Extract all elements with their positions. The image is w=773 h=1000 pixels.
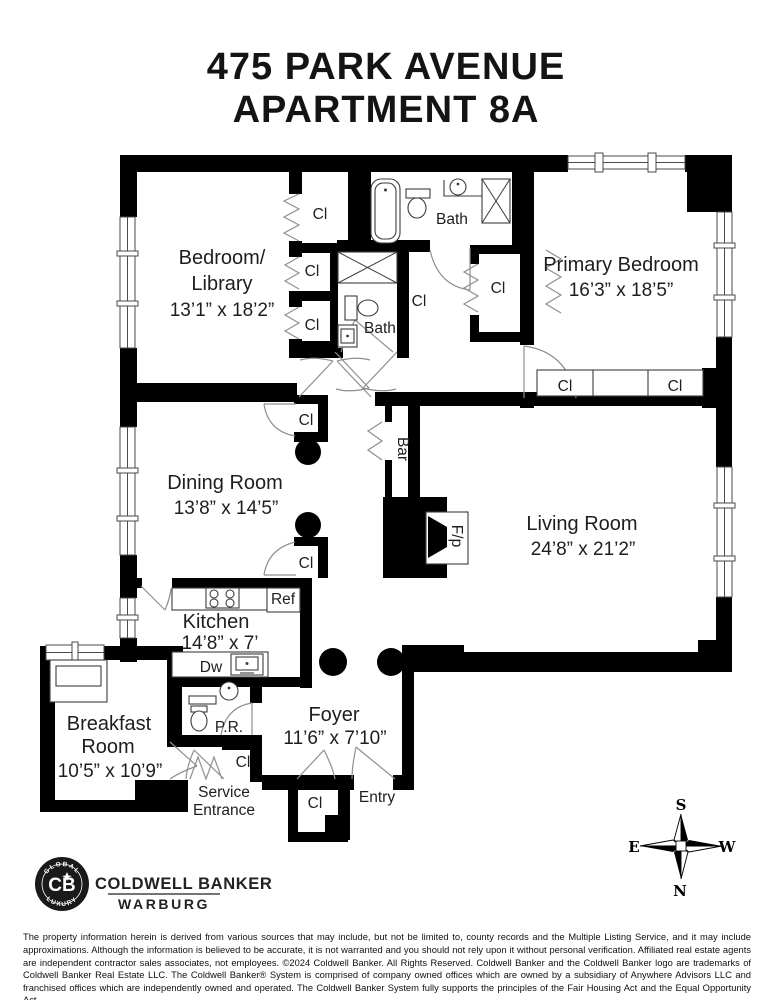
closet-label: Cl bbox=[313, 206, 328, 223]
living-room-label: Living Room bbox=[526, 513, 637, 535]
toilet-tank bbox=[406, 189, 430, 198]
window-breakfast-top bbox=[46, 642, 104, 661]
column bbox=[295, 439, 321, 465]
closet-label: Cl bbox=[299, 412, 314, 429]
bath-label: Bath bbox=[436, 211, 468, 228]
brand-block: GLOBAL LUXURY CB COLDWELL BANKER WARBURG bbox=[35, 857, 272, 912]
kitchen-label: Kitchen bbox=[183, 611, 250, 633]
floor-plan-page: 475 PARK AVENUE APARTMENT 8A bbox=[0, 0, 773, 1000]
column bbox=[377, 648, 405, 676]
service-entrance-label2: Entrance bbox=[193, 802, 255, 819]
sink bbox=[220, 682, 238, 700]
compass-east: E bbox=[628, 838, 639, 856]
column bbox=[319, 648, 347, 676]
folding-door-closet-3 bbox=[285, 307, 299, 339]
closet-label: Cl bbox=[558, 378, 573, 395]
badge-cb-monogram: CB bbox=[48, 875, 75, 896]
closet-label: Cl bbox=[668, 378, 683, 395]
brand-name: COLDWELL BANKER bbox=[95, 875, 272, 893]
sink bbox=[450, 179, 466, 195]
global-luxury-badge: GLOBAL LUXURY CB bbox=[35, 857, 89, 911]
dishwasher-label: Dw bbox=[200, 659, 223, 676]
closet-label: Cl bbox=[308, 795, 323, 812]
foyer-label: Foyer bbox=[308, 704, 359, 726]
bar-label: Bar bbox=[394, 437, 411, 461]
breakfast-room-label: Breakfast bbox=[67, 713, 152, 735]
folding-door-service-closet bbox=[190, 757, 222, 779]
page-title-line1: 475 PARK AVENUE bbox=[207, 46, 566, 88]
toilet-bowl bbox=[358, 300, 378, 316]
toilet-bowl bbox=[408, 198, 426, 218]
door-kitchen bbox=[141, 586, 171, 610]
bedroom-library-label2: Library bbox=[191, 273, 252, 295]
door-gallery-3 bbox=[299, 358, 333, 397]
compass-south: S bbox=[676, 796, 687, 814]
foyer-dims: 11’6” x 7’10” bbox=[283, 728, 386, 749]
door-breakfast-service bbox=[170, 742, 197, 779]
window-kitchen-left bbox=[117, 598, 138, 638]
door-entry bbox=[352, 747, 395, 779]
window-living-right bbox=[714, 467, 735, 597]
breakfast-room-label2: Room bbox=[81, 736, 134, 758]
refrigerator-label: Ref bbox=[271, 591, 296, 608]
closet-label: Cl bbox=[236, 754, 251, 771]
bedroom-library-label: Bedroom/ bbox=[179, 247, 266, 269]
fireplace-label: F/p bbox=[448, 525, 465, 547]
folding-door-closet-1 bbox=[284, 194, 299, 241]
dining-room-dims: 13’8” x 14’5” bbox=[174, 498, 279, 519]
compass-north: N bbox=[673, 882, 687, 900]
entry-label: Entry bbox=[359, 789, 395, 806]
window-primary-top bbox=[568, 153, 685, 172]
page-title-line2: APARTMENT 8A bbox=[233, 89, 540, 131]
breakfast-room-dims: 10’5” x 10’9” bbox=[58, 761, 163, 782]
primary-bedroom-label: Primary Bedroom bbox=[543, 254, 699, 276]
door-foyer-closet bbox=[297, 750, 335, 779]
compass-rose: S N E W bbox=[628, 796, 736, 900]
brand-division: WARBURG bbox=[118, 896, 210, 912]
door-dining-closet-bottom bbox=[264, 542, 296, 575]
folding-door-bar bbox=[368, 422, 382, 460]
door-bath-top bbox=[430, 248, 470, 290]
column bbox=[295, 512, 321, 538]
toilet-tank bbox=[345, 296, 357, 320]
window-primary-right bbox=[714, 212, 735, 337]
door-gallery-2 bbox=[363, 352, 397, 391]
disclaimer-text: The property information herein is deriv… bbox=[23, 931, 751, 1000]
window-bedroom-left bbox=[117, 217, 138, 348]
window-dining-left bbox=[117, 427, 138, 555]
toilet-bowl bbox=[191, 711, 207, 731]
breakfast-window-seat bbox=[50, 660, 107, 702]
closet-label: Cl bbox=[491, 280, 506, 297]
closet-label: Cl bbox=[299, 555, 314, 572]
compass-west: W bbox=[718, 838, 737, 856]
living-room-dims: 24’8” x 21’2” bbox=[531, 539, 636, 560]
floor-plan-svg: 475 PARK AVENUE APARTMENT 8A bbox=[0, 0, 773, 1000]
folding-door-closet-2 bbox=[285, 257, 299, 289]
closet-label: Cl bbox=[305, 263, 320, 280]
kitchen-dims: 14’8” x 7’ bbox=[181, 633, 258, 654]
bedroom-library-dims: 13’1” x 18’2” bbox=[170, 300, 275, 321]
room-labels: Bedroom/ Library 13’1” x 18’2” Primary B… bbox=[58, 206, 699, 819]
vanity bbox=[189, 696, 216, 704]
primary-bedroom-dims: 16’3” x 18’5” bbox=[569, 280, 674, 301]
door-dining-closet-top bbox=[264, 404, 296, 436]
powder-room-label: P.R. bbox=[215, 719, 243, 736]
folding-door-dressing-closet bbox=[464, 264, 478, 312]
closet-label: Cl bbox=[412, 293, 427, 310]
dining-room-label: Dining Room bbox=[167, 472, 283, 494]
closet-label: Cl bbox=[305, 317, 320, 334]
service-entrance-label1: Service bbox=[198, 784, 250, 801]
bath-label: Bath bbox=[364, 320, 396, 337]
